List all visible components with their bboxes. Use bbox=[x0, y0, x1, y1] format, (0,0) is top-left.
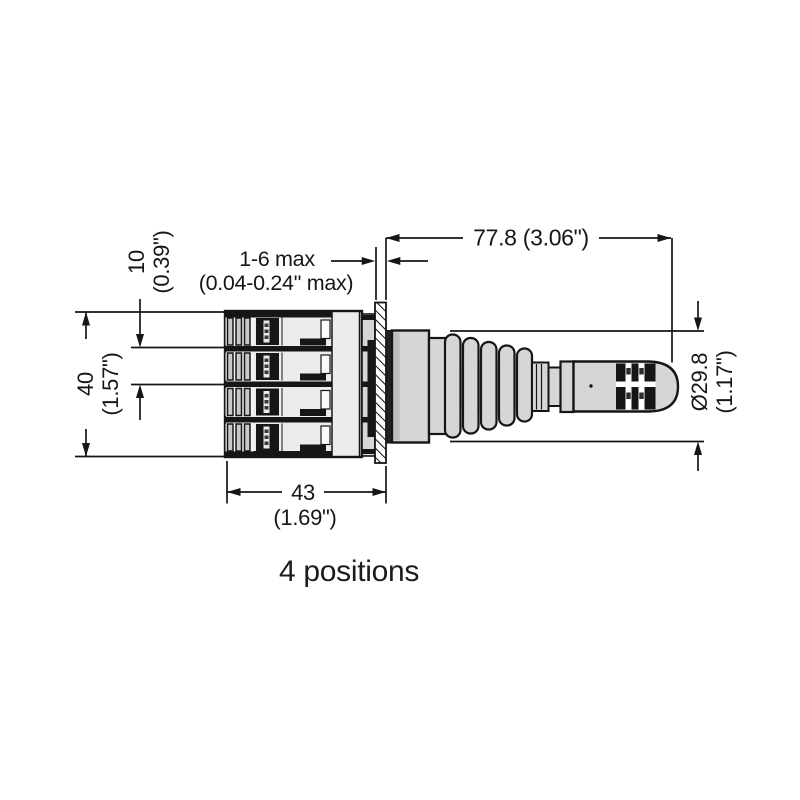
joystick-head bbox=[386, 331, 678, 444]
contact-block bbox=[225, 311, 362, 457]
shaft-neck bbox=[549, 368, 561, 407]
dimension-panel-thickness: 1-6 max (0.04-0.24" max) bbox=[199, 247, 428, 300]
dimension-block-width: 43 (1.69") bbox=[227, 461, 386, 530]
arrowhead bbox=[136, 385, 144, 399]
bushing-band bbox=[362, 449, 375, 454]
head-diameter-mm: Ø29.8 bbox=[687, 353, 712, 411]
row-bar bbox=[225, 346, 332, 352]
block-width-inch: (1.69") bbox=[273, 505, 336, 530]
arrowhead bbox=[136, 334, 144, 348]
handle-base-ring bbox=[561, 362, 574, 413]
arrowhead bbox=[694, 442, 702, 456]
collar-shading bbox=[394, 333, 400, 441]
shaft bbox=[532, 363, 549, 412]
bellows-rib bbox=[445, 335, 461, 438]
overall-length-label: 77.8 (3.06") bbox=[473, 225, 589, 251]
bellows-rib bbox=[517, 349, 532, 422]
panel-thickness-inch: (0.04-0.24" max) bbox=[199, 271, 354, 295]
grip-dot bbox=[626, 393, 630, 400]
contact-pitch-mm: 10 bbox=[124, 250, 149, 274]
row-bar bbox=[225, 417, 332, 423]
arrowhead bbox=[386, 234, 400, 242]
arrowhead bbox=[82, 443, 90, 457]
block-height-inch: (1.57") bbox=[98, 352, 123, 415]
contact-pitch-inch: (0.39") bbox=[149, 230, 174, 293]
arrowhead bbox=[362, 257, 376, 265]
mounting-assembly bbox=[362, 303, 386, 464]
arrowhead bbox=[694, 318, 702, 332]
panel-thickness-mm: 1-6 max bbox=[239, 247, 315, 271]
bellows-rib bbox=[463, 338, 479, 434]
head-diameter-inch: (1.17") bbox=[712, 350, 737, 413]
block-width-mm: 43 bbox=[291, 480, 315, 505]
grip-dot bbox=[639, 393, 643, 400]
arrowhead bbox=[373, 488, 387, 496]
positions-caption: 4 positions bbox=[279, 555, 419, 588]
grip-dot bbox=[626, 368, 630, 375]
arrowhead bbox=[658, 234, 672, 242]
bellows-rib bbox=[481, 342, 497, 430]
row-bar bbox=[225, 382, 332, 388]
bushing-band bbox=[362, 315, 375, 320]
row-bar bbox=[225, 312, 332, 318]
arrowhead bbox=[227, 488, 241, 496]
block-height-mm: 40 bbox=[73, 372, 98, 396]
grip-band bbox=[616, 382, 656, 388]
dimension-contact-pitch: 10 (0.39") bbox=[124, 230, 224, 420]
joystick-dimension-diagram: 40 (1.57") 10 (0.39") 43 (1.69") 77 bbox=[0, 0, 800, 800]
handle-mold-dot bbox=[589, 384, 592, 387]
mounting-panel bbox=[375, 303, 386, 464]
grip-dot bbox=[639, 368, 643, 375]
row-bar bbox=[225, 451, 332, 457]
bellows-rib bbox=[499, 346, 515, 426]
locknut bbox=[368, 340, 376, 437]
grip-texture bbox=[616, 364, 656, 410]
arrowhead bbox=[82, 312, 90, 326]
arrowhead bbox=[387, 257, 401, 265]
technical-drawing: 40 (1.57") 10 (0.39") 43 (1.69") 77 bbox=[0, 0, 800, 800]
